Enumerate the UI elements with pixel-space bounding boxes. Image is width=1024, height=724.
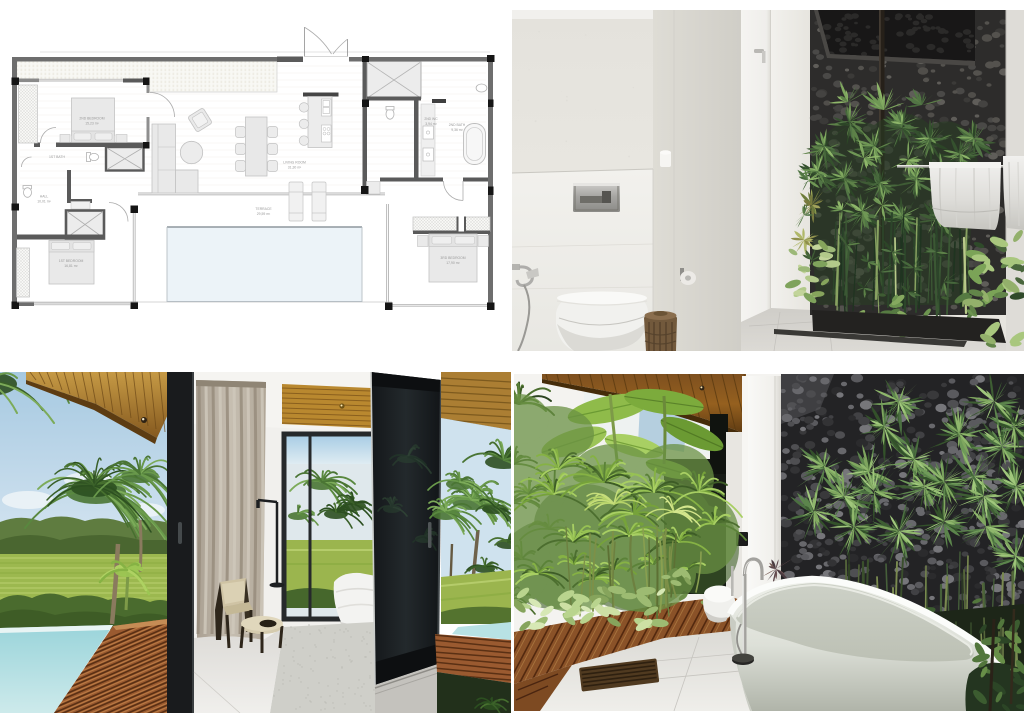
svg-text:15,23 m²: 15,23 m² [85,122,99,126]
svg-text:HALL: HALL [40,195,49,199]
svg-text:10,01 m²: 10,01 m² [37,200,51,204]
svg-text:9,36 m²: 9,36 m² [451,128,463,132]
svg-text:29,59 m²: 29,59 m² [257,212,271,216]
svg-text:3RD BEDROOM: 3RD BEDROOM [440,256,465,260]
svg-text:3,94 m²: 3,94 m² [425,122,437,126]
svg-text:2ND WC: 2ND WC [424,117,438,121]
svg-text:31,30 m²: 31,30 m² [288,166,302,170]
svg-text:2ND BATH: 2ND BATH [449,123,466,127]
svg-text:16,81 m²: 16,81 m² [64,264,78,268]
svg-text:TERRACE: TERRACE [255,207,272,211]
svg-text:LIVING ROOM: LIVING ROOM [283,161,306,165]
svg-text:2ND BEDROOM: 2ND BEDROOM [79,117,104,121]
svg-text:1ST BEDROOM: 1ST BEDROOM [59,259,84,263]
svg-text:17,90 m²: 17,90 m² [446,261,460,265]
svg-text:1ST BATH: 1ST BATH [49,155,65,159]
